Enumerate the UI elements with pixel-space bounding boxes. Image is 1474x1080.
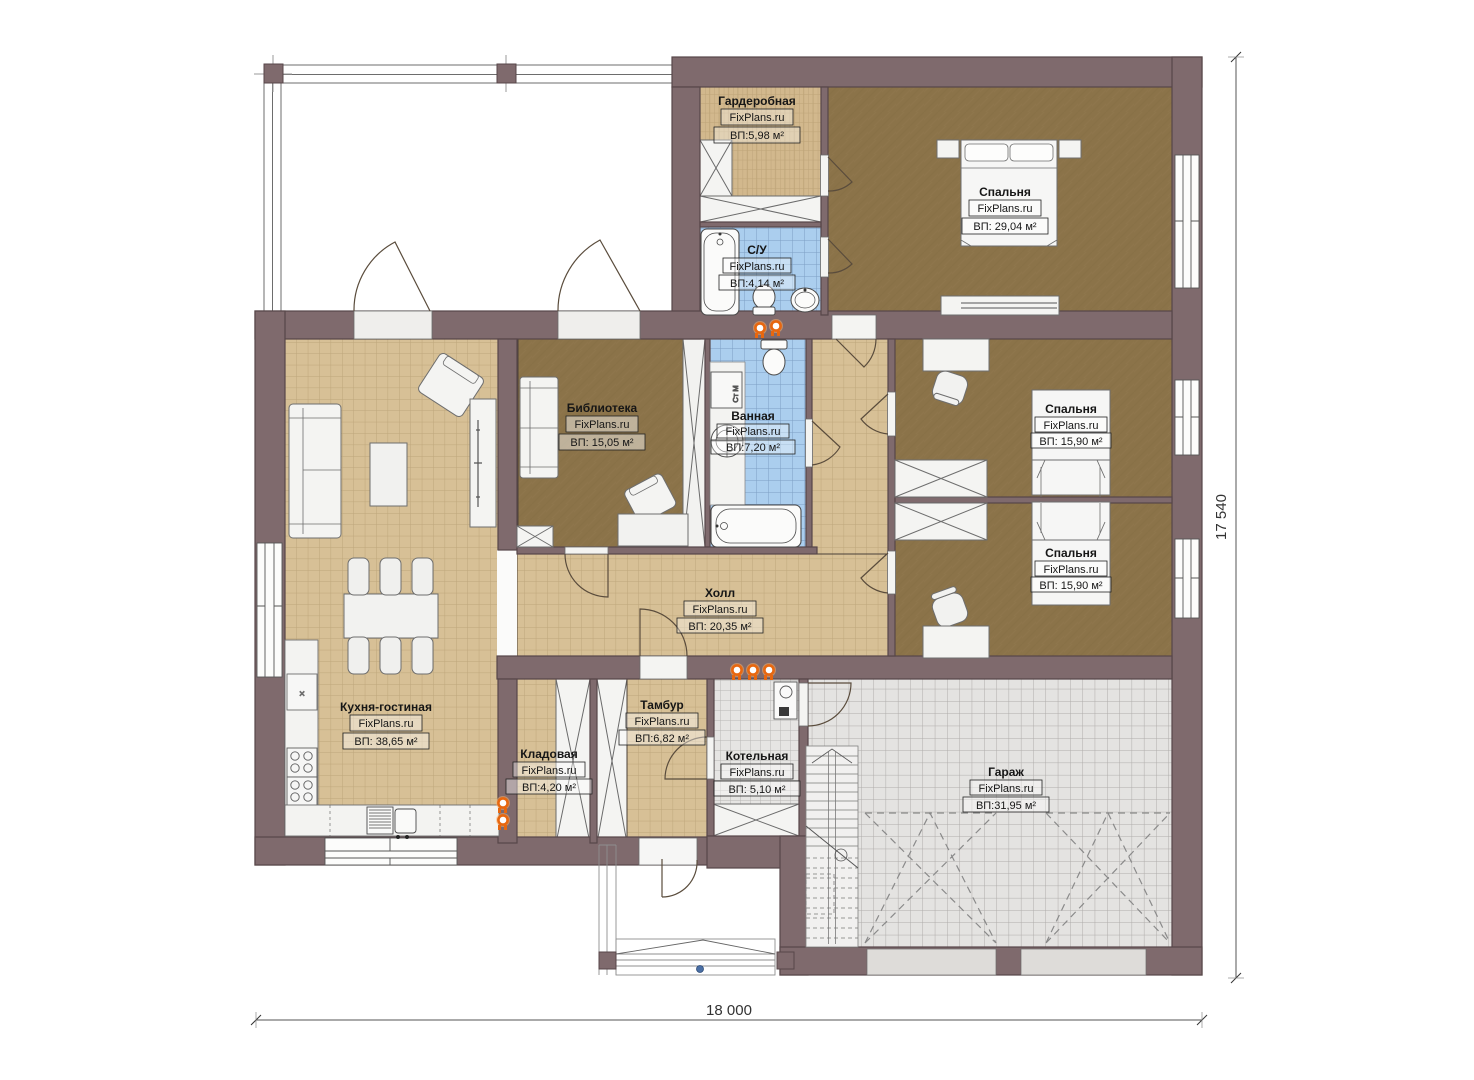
svg-text:Ванная: Ванная <box>731 409 775 423</box>
svg-text:FixPlans.ru: FixPlans.ru <box>977 203 1032 215</box>
svg-text:FixPlans.ru: FixPlans.ru <box>725 426 780 438</box>
svg-text:Ст М: Ст М <box>731 385 740 402</box>
svg-text:FixPlans.ru: FixPlans.ru <box>634 716 689 728</box>
svg-text:ВП: 15,05 м²: ВП: 15,05 м² <box>570 437 634 449</box>
svg-text:ВП: 20,35 м²: ВП: 20,35 м² <box>688 621 752 633</box>
svg-text:ВП:7,20 м²: ВП:7,20 м² <box>726 442 780 454</box>
svg-text:ВП: 15,90 м²: ВП: 15,90 м² <box>1039 436 1103 448</box>
svg-text:Спальня: Спальня <box>1045 402 1097 416</box>
svg-text:×: × <box>299 689 305 700</box>
svg-text:ВП:4,20 м²: ВП:4,20 м² <box>522 782 576 794</box>
svg-text:17 540: 17 540 <box>1213 494 1230 540</box>
svg-text:Кладовая: Кладовая <box>520 747 577 761</box>
svg-text:Котельная: Котельная <box>726 749 789 763</box>
svg-text:Библиотека: Библиотека <box>567 401 638 415</box>
svg-text:ВП:5,98 м²: ВП:5,98 м² <box>730 130 784 142</box>
svg-text:FixPlans.ru: FixPlans.ru <box>574 419 629 431</box>
svg-text:Кухня-гостиная: Кухня-гостиная <box>340 700 432 714</box>
svg-text:FixPlans.ru: FixPlans.ru <box>978 783 1033 795</box>
svg-text:Спальня: Спальня <box>1045 546 1097 560</box>
svg-text:ВП: 29,04 м²: ВП: 29,04 м² <box>973 221 1037 233</box>
svg-text:Тамбур: Тамбур <box>640 698 684 712</box>
svg-text:Холл: Холл <box>705 586 735 600</box>
svg-text:С/У: С/У <box>747 243 767 257</box>
svg-text:FixPlans.ru: FixPlans.ru <box>1043 420 1098 432</box>
svg-text:FixPlans.ru: FixPlans.ru <box>1043 564 1098 576</box>
svg-text:ВП:31,95 м²: ВП:31,95 м² <box>976 800 1036 812</box>
svg-text:FixPlans.ru: FixPlans.ru <box>729 261 784 273</box>
svg-text:FixPlans.ru: FixPlans.ru <box>521 765 576 777</box>
svg-text:FixPlans.ru: FixPlans.ru <box>729 112 784 124</box>
svg-text:ВП: 15,90 м²: ВП: 15,90 м² <box>1039 580 1103 592</box>
svg-text:18 000: 18 000 <box>706 1002 752 1019</box>
svg-text:FixPlans.ru: FixPlans.ru <box>358 718 413 730</box>
svg-text:Гардеробная: Гардеробная <box>718 94 796 108</box>
svg-text:ВП:6,82 м²: ВП:6,82 м² <box>635 733 689 745</box>
svg-text:FixPlans.ru: FixPlans.ru <box>729 767 784 779</box>
svg-text:ВП: 5,10 м²: ВП: 5,10 м² <box>728 784 785 796</box>
svg-text:Спальня: Спальня <box>979 185 1031 199</box>
svg-text:Гараж: Гараж <box>988 765 1024 779</box>
svg-text:FixPlans.ru: FixPlans.ru <box>692 604 747 616</box>
svg-text:ВП: 38,65 м²: ВП: 38,65 м² <box>354 736 418 748</box>
svg-text:ВП:4,14 м²: ВП:4,14 м² <box>730 278 784 290</box>
